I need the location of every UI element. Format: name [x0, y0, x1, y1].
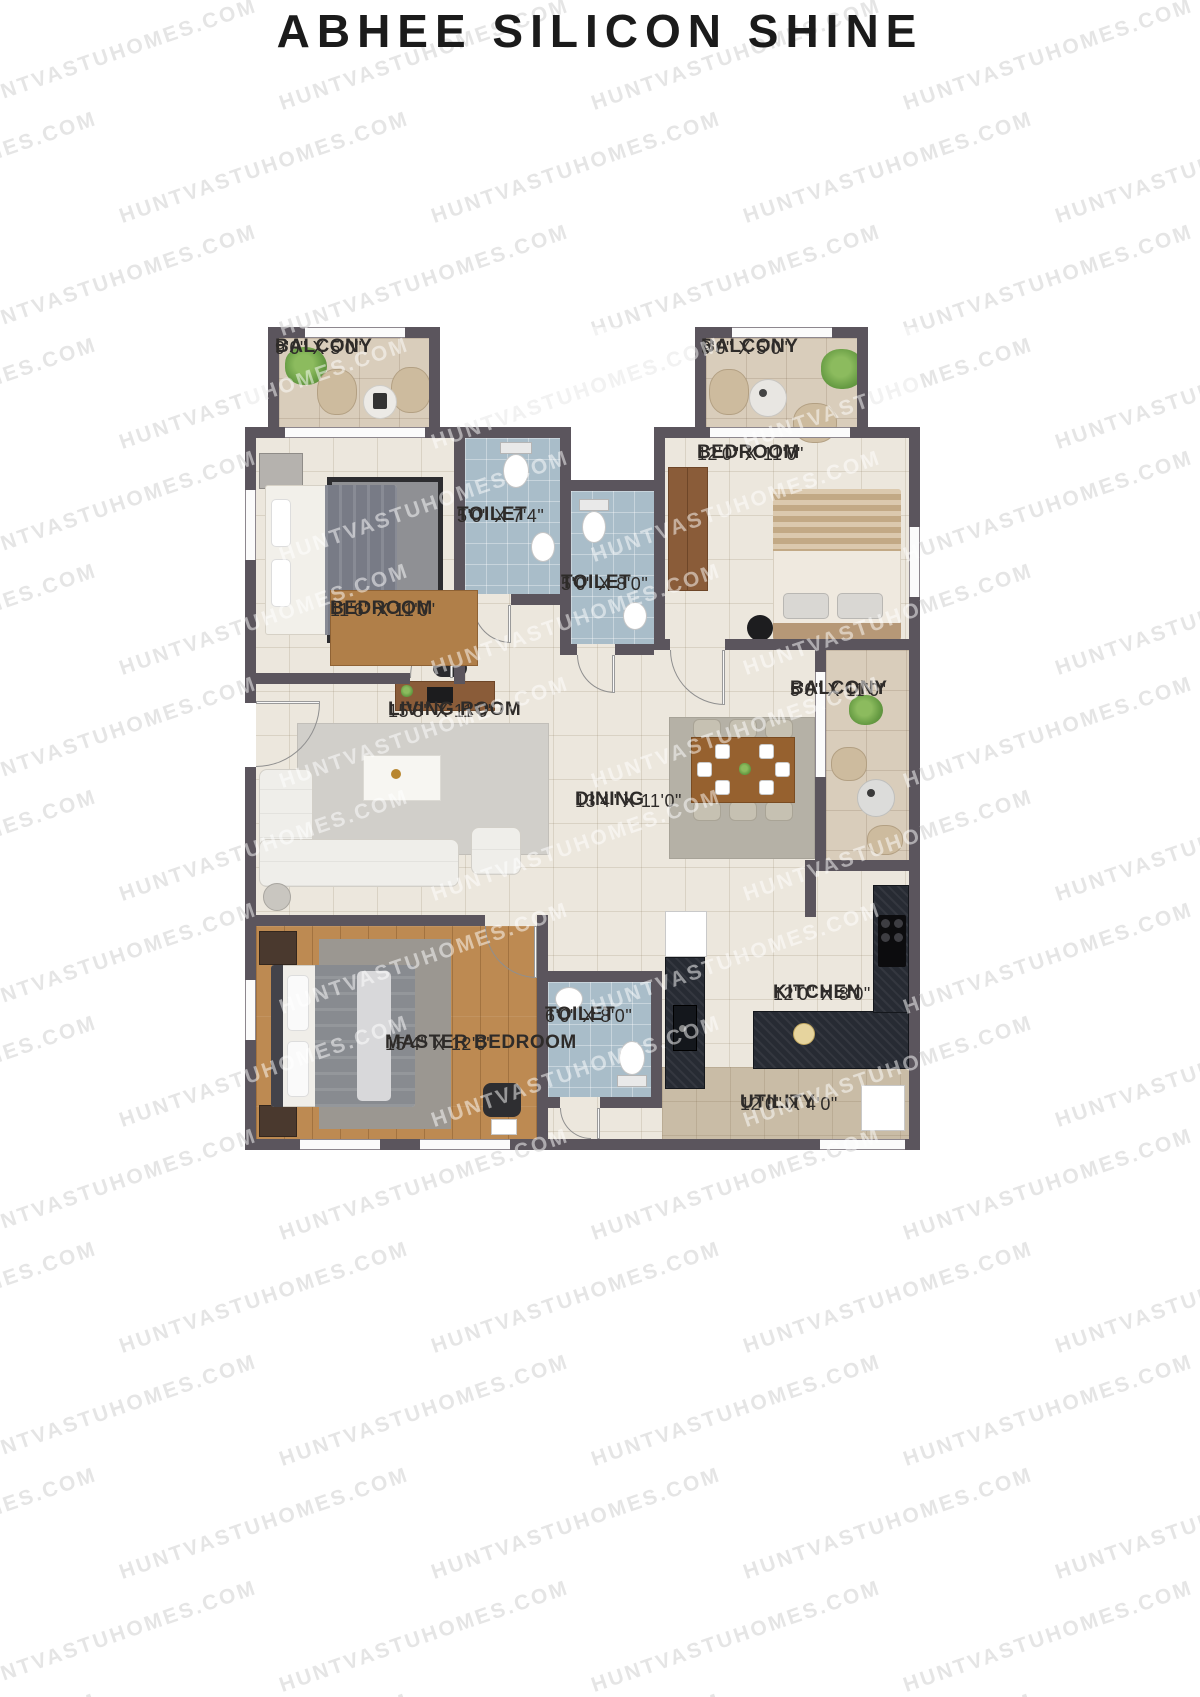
room-dims: 15'8" X 11'0" — [388, 698, 495, 724]
sofa — [259, 839, 459, 887]
window-bedroom1-left — [245, 490, 256, 560]
window-bedroom1-balcony — [285, 427, 425, 438]
watermark-text: HUNTVASTUHOMES.COM — [900, 446, 1196, 568]
plate — [715, 780, 730, 795]
watermark-text: HUNTVASTUHOMES.COM — [0, 446, 260, 568]
burner — [881, 919, 890, 928]
dining-chair — [729, 719, 757, 739]
watermark-text: HUNTVASTUHOMES.COM — [1052, 785, 1200, 907]
watermark-text: HUNTVASTUHOMES.COM — [1052, 1237, 1200, 1359]
floor-plan: BALCONY 9'0" X 5'0" BALCONY 9'0" X 5'0" … — [245, 327, 920, 1150]
watermark-text: HUNTVASTUHOMES.COM — [0, 672, 260, 794]
plate — [715, 744, 730, 759]
plate — [775, 762, 790, 777]
window-utility-bottom — [820, 1139, 905, 1150]
plate — [759, 780, 774, 795]
watermark-text: HUNTVASTUHOMES.COM — [588, 1350, 884, 1472]
balcony-chair — [831, 747, 867, 781]
window-master-left — [245, 980, 256, 1040]
watermark-text: HUNTVASTUHOMES.COM — [116, 1689, 412, 1697]
wall-bedroom2-bottom — [725, 639, 920, 650]
toilet-tank — [579, 499, 609, 511]
watermark-text: HUNTVASTUHOMES.COM — [116, 107, 412, 229]
watermark-text: HUNTVASTUHOMES.COM — [900, 327, 920, 342]
side-table — [491, 1119, 517, 1135]
washbasin — [531, 532, 555, 562]
room-dims: 9'0" X 5'0" — [701, 335, 788, 361]
watermark-text: HUNTVASTUHOMES.COM — [116, 1237, 412, 1359]
watermark-text: HUNTVASTUHOMES.COM — [0, 1237, 100, 1359]
burner — [881, 933, 890, 942]
bedroom2-door-leaf — [722, 650, 725, 705]
table-decor — [867, 789, 875, 797]
wall-balcony-right-bottom — [815, 860, 920, 871]
toilet3-door-leaf — [597, 1108, 600, 1139]
room-dims: 15'4" X 12'0" — [385, 1031, 493, 1057]
watermark-text: HUNTVASTUHOMES.COM — [1052, 107, 1200, 229]
watermark-text: HUNTVASTUHOMES.COM — [0, 333, 100, 455]
toilet-bowl — [619, 1041, 645, 1075]
page-title: ABHEE SILICON SHINE — [0, 4, 1200, 58]
toilet-bowl — [503, 454, 529, 488]
page: ABHEE SILICON SHINE HUNTVASTUHOMES.COMHU… — [0, 0, 1200, 1697]
pillow — [271, 559, 291, 607]
faucet — [679, 1025, 686, 1032]
watermark-text: HUNTVASTUHOMES.COM — [428, 0, 724, 3]
room-dims: 13'4" X 11'0" — [575, 788, 682, 814]
room-dims: 12'0" X 11'0" — [697, 441, 804, 467]
watermark-text: HUNTVASTUHOMES.COM — [0, 559, 100, 681]
balcony-chair — [709, 369, 749, 415]
toilet-tank — [500, 442, 532, 454]
window-master-bottom — [420, 1139, 510, 1150]
plate — [759, 744, 774, 759]
chair — [483, 1083, 521, 1117]
watermark-text: HUNTVASTUHOMES.COM — [428, 1689, 724, 1697]
balcony-chair — [867, 825, 903, 855]
side-table — [263, 883, 291, 911]
balcony-table — [857, 779, 895, 817]
watermark-text: HUNTVASTUHOMES.COM — [0, 898, 260, 1020]
toilet1-door-leaf — [508, 605, 511, 643]
dining-chair — [693, 719, 721, 739]
fridge — [665, 911, 707, 957]
wall-toilet3-bottom — [600, 1097, 662, 1108]
toilet2-door-leaf — [612, 655, 615, 693]
window-bedroom2-right — [909, 527, 920, 597]
watermark-text: HUNTVASTUHOMES.COM — [276, 1350, 572, 1472]
watermark-text: HUNTVASTUHOMES.COM — [740, 1689, 1036, 1697]
room-dims: 12'0" X 8'0" — [773, 981, 871, 1007]
watermark-text: HUNTVASTUHOMES.COM — [740, 1237, 1036, 1359]
pillow — [287, 975, 309, 1031]
pillow — [783, 593, 829, 619]
watermark-text: HUNTVASTUHOMES.COM — [0, 1124, 260, 1246]
watermark-text: HUNTVASTUHOMES.COM — [1052, 1689, 1200, 1697]
watermark-text: HUNTVASTUHOMES.COM — [740, 1463, 1036, 1585]
watermark-text: HUNTVASTUHOMES.COM — [900, 898, 1196, 1020]
dining-chair — [765, 719, 793, 739]
wall-notch — [560, 427, 571, 491]
plan-notch — [571, 427, 654, 480]
headboard — [271, 965, 283, 1107]
watermark-text: HUNTVASTUHOMES.COM — [276, 220, 572, 342]
wall-toilet3-top — [548, 971, 662, 982]
bedspread — [773, 489, 901, 551]
watermark-text: HUNTVASTUHOMES.COM — [1052, 0, 1200, 3]
wall-toilet2-bottom — [571, 644, 577, 655]
wall-master-top — [245, 915, 485, 926]
table-decor — [391, 769, 401, 779]
wall-toilet3-right — [651, 971, 662, 1108]
centerpiece — [739, 763, 751, 775]
pillow — [271, 499, 291, 547]
wall-toilet1-bottom — [511, 594, 560, 605]
balcony-chair — [317, 369, 357, 415]
nightstand — [259, 931, 297, 965]
wall-notch — [654, 427, 665, 491]
washing-machine — [861, 1085, 905, 1131]
watermark-text: HUNTVASTUHOMES.COM — [900, 1576, 1196, 1697]
watermark-text: HUNTVASTUHOMES.COM — [116, 1463, 412, 1585]
wall-bedroom2-left — [654, 491, 665, 650]
wall-toilet2-top — [560, 480, 665, 491]
watermark-text: HUNTVASTUHOMES.COM — [588, 1576, 884, 1697]
pouf — [747, 615, 773, 641]
wall-bedroom2-bottom — [654, 639, 670, 650]
dining-chair — [693, 801, 721, 821]
watermark-text: HUNTVASTUHOMES.COM — [588, 220, 884, 342]
pillow — [287, 1041, 309, 1097]
nightstand — [259, 1105, 297, 1137]
watermark-text: HUNTVASTUHOMES.COM — [276, 1576, 572, 1697]
watermark-text: HUNTVASTUHOMES.COM — [0, 0, 100, 3]
watermark-text: HUNTVASTUHOMES.COM — [740, 0, 1036, 3]
room-dims: 6'0" X 8'0" — [545, 1003, 632, 1029]
watermark-text: HUNTVASTUHOMES.COM — [900, 220, 1196, 342]
watermark-text: HUNTVASTUHOMES.COM — [0, 1350, 260, 1472]
armchair — [471, 827, 521, 875]
wall-kitchen-stub — [805, 860, 816, 917]
watermark-text: HUNTVASTUHOMES.COM — [1052, 1011, 1200, 1133]
table-decor — [759, 389, 767, 397]
wall-bedroom1-bottom — [245, 673, 410, 684]
balcony-table — [749, 379, 787, 417]
room-dims: 12'0" X 4'0" — [740, 1091, 838, 1117]
watermark-text: HUNTVASTUHOMES.COM — [428, 1237, 724, 1359]
room-dims: 9'0" X 5'0" — [275, 335, 362, 361]
wall-balcony-tl — [429, 327, 440, 427]
watermark-text: HUNTVASTUHOMES.COM — [0, 1463, 100, 1585]
table-decor — [373, 393, 387, 409]
fruit-plate — [793, 1023, 815, 1045]
washbasin — [623, 602, 647, 630]
watermark-text: HUNTVASTUHOMES.COM — [116, 0, 412, 3]
room-dims: 5'0" X 11'0" — [790, 677, 886, 703]
balcony-chair — [391, 367, 431, 413]
wall-toilet2-bottom — [615, 644, 654, 655]
watermark-text: HUNTVASTUHOMES.COM — [740, 107, 1036, 229]
watermark-text: HUNTVASTUHOMES.COM — [0, 1576, 260, 1697]
watermark-text: HUNTVASTUHOMES.COM — [900, 1350, 1196, 1472]
kitchen-counter — [753, 1011, 909, 1069]
room-dims: 5'0" X 7'4" — [457, 503, 544, 529]
pillow — [837, 593, 883, 619]
watermark-text: HUNTVASTUHOMES.COM — [900, 672, 1196, 794]
watermark-text: HUNTVASTUHOMES.COM — [1052, 1463, 1200, 1585]
coffee-table — [363, 755, 441, 801]
wall-balcony-tr — [857, 327, 868, 427]
dining-chair — [729, 801, 757, 821]
watermark-text: HUNTVASTUHOMES.COM — [0, 1011, 100, 1133]
watermark-text: HUNTVASTUHOMES.COM — [900, 1124, 1196, 1246]
watermark-text: HUNTVASTUHOMES.COM — [245, 327, 260, 342]
burner — [894, 919, 903, 928]
watermark-text: HUNTVASTUHOMES.COM — [428, 1463, 724, 1585]
entrance-door-leaf — [256, 701, 320, 704]
wardrobe — [668, 467, 708, 591]
watermark-text: HUNTVASTUHOMES.COM — [0, 1689, 100, 1697]
window-master-bottom — [300, 1139, 380, 1150]
plate — [697, 762, 712, 777]
watermark-text: HUNTVASTUHOMES.COM — [0, 785, 100, 907]
burner — [894, 933, 903, 942]
toilet-bowl — [582, 511, 606, 543]
watermark-text: HUNTVASTUHOMES.COM — [1052, 559, 1200, 681]
desk-plant — [401, 685, 413, 697]
toilet-tank — [617, 1075, 647, 1087]
watermark-text: HUNTVASTUHOMES.COM — [428, 107, 724, 229]
watermark-text: HUNTVASTUHOMES.COM — [0, 220, 260, 342]
watermark-text: HUNTVASTUHOMES.COM — [0, 107, 100, 229]
room-dims: 11'6" X 11'0" — [330, 597, 436, 623]
dining-chair — [765, 801, 793, 821]
entrance-opening — [245, 703, 256, 767]
watermark-text: HUNTVASTUHOMES.COM — [1052, 333, 1200, 455]
master-door-leaf — [534, 926, 537, 978]
wall-toilet3-bottom — [548, 1097, 560, 1108]
dresser — [259, 453, 303, 489]
window-bedroom2-balcony — [710, 427, 850, 438]
room-dims: 5'0" X 8'0" — [561, 571, 648, 597]
